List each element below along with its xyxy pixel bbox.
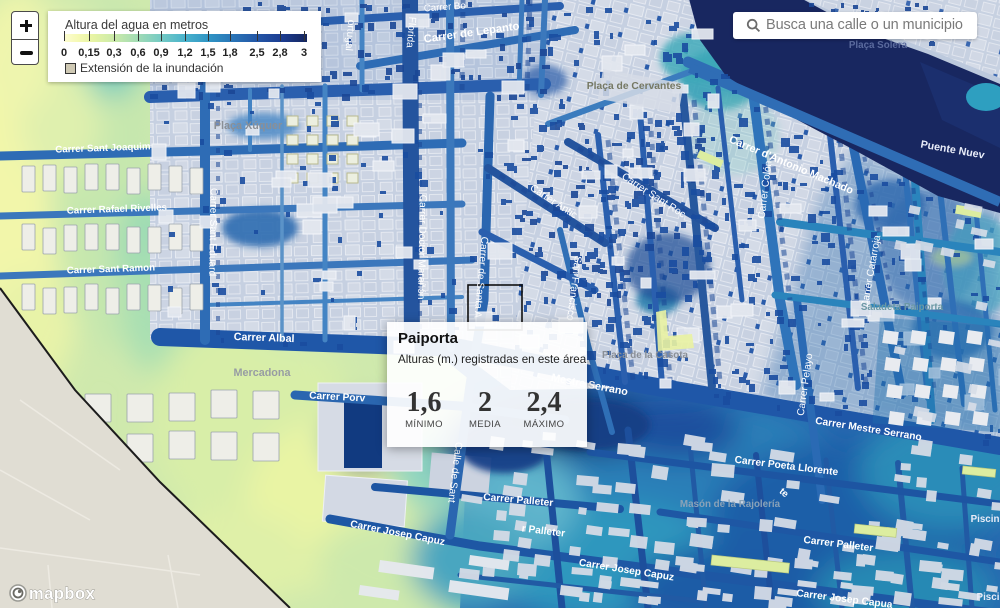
svg-text:Plaça Xúquer: Plaça Xúquer <box>214 120 283 132</box>
svg-text:Carrer Sant Eduard: Carrer Sant Eduard <box>206 188 219 277</box>
svg-text:Carrer Doctor Marañón: Carrer Doctor Marañón <box>415 195 428 300</box>
svg-text:Carrer Albal: Carrer Albal <box>234 331 295 345</box>
svg-text:mapbox: mapbox <box>29 585 96 603</box>
svg-text:Plaça de Cervantes: Plaça de Cervantes <box>587 81 682 92</box>
svg-text:Pisci: Pisci <box>977 592 1000 603</box>
svg-text:Piscin: Piscin <box>971 514 1000 525</box>
svg-text:Masón de la Rajolería: Masón de la Rajolería <box>680 499 781 510</box>
svg-text:Saladeta Paiporta: Saladeta Paiporta <box>861 302 944 313</box>
svg-text:Mercadona: Mercadona <box>234 367 292 379</box>
svg-text:Plaça de la Casota: Plaça de la Casota <box>602 350 689 361</box>
svg-text:Plaça Solera: Plaça Solera <box>849 40 908 51</box>
